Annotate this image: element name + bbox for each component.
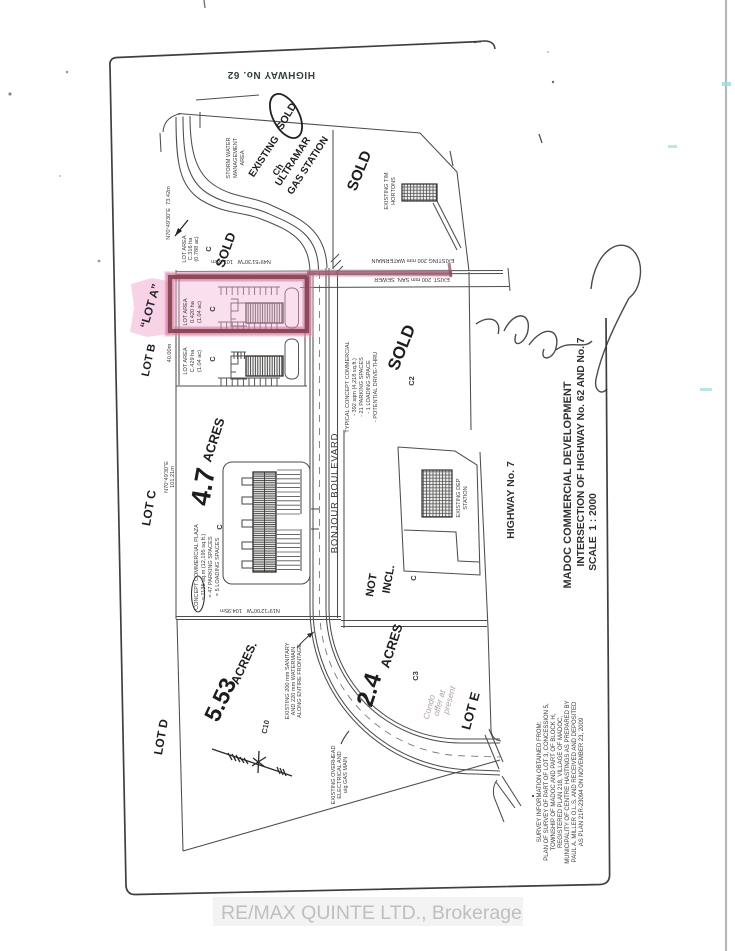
svg-text:(0.788 ac): (0.788 ac)	[194, 236, 200, 261]
svg-text:NOT: NOT	[364, 572, 380, 597]
svg-text:101.21m: 101.21m	[170, 466, 176, 488]
svg-text:C: C	[204, 246, 213, 252]
svg-text:AREA: AREA	[240, 150, 246, 166]
svg-text:- 21 PARKING SPACES: - 21 PARKING SPACES	[359, 357, 365, 417]
svg-text:ACRES: ACRES	[377, 622, 405, 670]
svg-text:AS PLAN 21R-23094 ON NOVEMBER: AS PLAN 21R-23094 ON NOVEMBER 23, 2009	[579, 717, 585, 846]
svg-text:SOLD: SOLD	[344, 148, 375, 193]
svg-text:C: C	[409, 575, 418, 581]
svg-text:INTERSECTION OF HIGHWAY No. 62: INTERSECTION OF HIGHWAY No. 62 AND No. 7	[576, 337, 587, 566]
svg-text:u/g GAS MAIN: u/g GAS MAIN	[343, 757, 349, 794]
svg-text:MANAGEMENT: MANAGEMENT	[233, 137, 239, 178]
svg-text:N70°49'30"E 73.42m: N70°49'30"E 73.42m	[166, 186, 172, 240]
svg-text:TOWNSHIP OF MADOC AND PART OF: TOWNSHIP OF MADOC AND PART OF BLOCK H,	[551, 713, 557, 850]
svg-text:4.7: 4.7	[185, 466, 221, 508]
svg-text:- POTENTIAL DRIVE-THRU: - POTENTIAL DRIVE-THRU	[373, 352, 379, 422]
svg-text:EXIST. 200 mm SAN. SEWER: EXIST. 200 mm SAN. SEWER	[374, 276, 450, 282]
svg-text:LOT D: LOT D	[151, 718, 171, 756]
svg-text:ACRES.: ACRES.	[228, 639, 260, 686]
svg-text:(1.04 ac): (1.04 ac)	[197, 350, 203, 372]
svg-text:BONJOUR BOULEVARD: BONJOUR BOULEVARD	[330, 433, 341, 554]
svg-text:HORTONS: HORTONS	[391, 177, 397, 205]
svg-text:PLAN OF SURVEY OF PART OF LOT: PLAN OF SURVEY OF PART OF LOT 3, CONCESS…	[544, 703, 550, 861]
svg-text:LOT C: LOT C	[139, 489, 159, 527]
svg-text:SCALE 1 : 2000: SCALE 1 : 2000	[588, 493, 599, 571]
svg-text:STORM WATER: STORM WATER	[226, 137, 232, 178]
svg-text:LOT E: LOT E	[458, 690, 482, 731]
svg-text:SOLD: SOLD	[384, 322, 419, 373]
svg-text:= 5 LOADING SPACES: = 5 LOADING SPACES	[215, 537, 221, 596]
svg-text:ALONG ENTIRE FRONTAGE: ALONG ENTIRE FRONTAGE	[297, 644, 303, 718]
svg-text:C.429 ha: C.429 ha	[190, 349, 196, 373]
svg-text:C: C	[208, 356, 217, 362]
svg-text:INCL.: INCL.	[381, 564, 398, 594]
svg-text:C2: C2	[407, 376, 416, 386]
svg-text:EXISTING DEP: EXISTING DEP	[456, 478, 462, 517]
svg-text:= 47 PARKING SPACES: = 47 PARKING SPACES	[208, 536, 214, 597]
svg-text:C10: C10	[260, 719, 272, 734]
svg-text:HIGHWAY No. 62: HIGHWAY No. 62	[227, 69, 315, 80]
svg-text:MUNICIPALITY OF CENTRE HASTING: MUNICIPALITY OF CENTRE HASTINGS AS PREPA…	[565, 700, 571, 863]
svg-text:REGISTERED PLAN 218, VILLAGE O: REGISTERED PLAN 218, VILLAGE OF MADOC,	[558, 716, 564, 848]
svg-text:ACRES: ACRES	[199, 416, 227, 464]
svg-text:LOT AREA: LOT AREA	[183, 347, 189, 375]
svg-text:present: present	[440, 684, 457, 716]
svg-text:C: C	[208, 306, 217, 312]
svg-text:- 392 sqm (4,218 sq.ft.): - 392 sqm (4,218 sq.ft.)	[352, 358, 358, 416]
svg-text:PAUL A. MILLER O.L.S. AND RECE: PAUL A. MILLER O.L.S. AND RECEIVED AND D…	[572, 701, 578, 862]
svg-text:STATION: STATION	[463, 486, 469, 509]
svg-text:LOT AREA: LOT AREA	[183, 298, 189, 326]
svg-text:LOT B: LOT B	[140, 343, 159, 378]
svg-text:TYPICAL CONCEPT COMMERCIAL: TYPICAL CONCEPT COMMERCIAL	[345, 341, 351, 432]
svg-text:EXISTING TIM: EXISTING TIM	[384, 172, 390, 210]
svg-text:C3: C3	[411, 671, 420, 681]
svg-text:EXISTING 200 mm WATERMAIN: EXISTING 200 mm WATERMAIN	[372, 257, 455, 263]
svg-text:C: C	[215, 524, 224, 530]
svg-text:(1.04 ac): (1.04 ac)	[197, 301, 203, 323]
svg-text:HIGHWAY No. 7: HIGHWAY No. 7	[505, 461, 517, 539]
svg-text:N19°12'00"W 104.95m: N19°12'00"W 104.95m	[220, 607, 280, 613]
svg-text:0.420 ha: 0.420 ha	[190, 300, 196, 323]
svg-text:RE/MAX QUINTE LTD., Brokerage: RE/MAX QUINTE LTD., Brokerage	[221, 902, 522, 924]
svg-text:- 1 LOADING SPACE: - 1 LOADING SPACE	[366, 360, 372, 414]
svg-text:2.4: 2.4	[352, 669, 388, 710]
svg-text:CONCEPT COMMERCIAL PLAZA: CONCEPT COMMERCIAL PLAZA	[194, 524, 200, 610]
svg-text:SURVEY INFORMATION OBTAINED FR: SURVEY INFORMATION OBTAINED FROM:	[537, 721, 543, 842]
svg-text:MADOC COMMERCIAL DEVELOPMENT: MADOC COMMERCIAL DEVELOPMENT	[562, 381, 574, 588]
svg-text:40.00m: 40.00m	[167, 343, 173, 362]
